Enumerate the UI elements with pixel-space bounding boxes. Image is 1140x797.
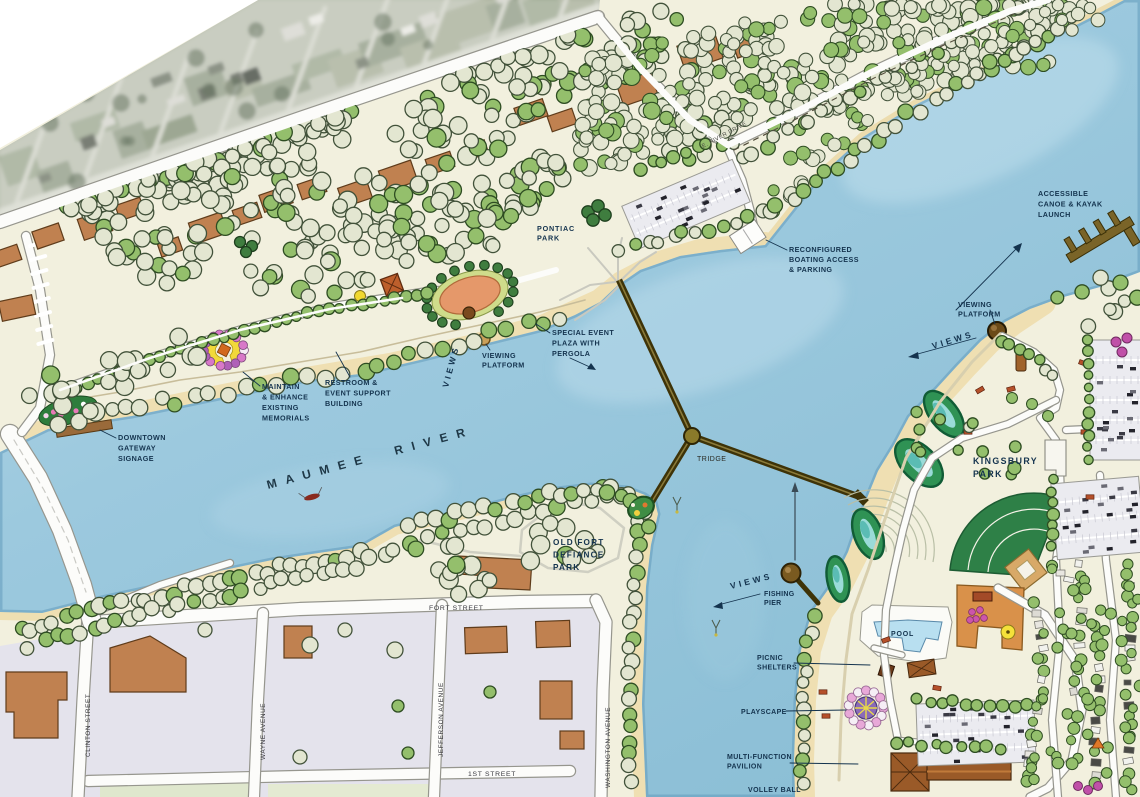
svg-text:TRIDGE: TRIDGE <box>697 456 726 463</box>
svg-text:JEFFERSON AVENUE: JEFFERSON AVENUE <box>438 682 445 757</box>
svg-text:FORT STREET: FORT STREET <box>429 605 484 612</box>
svg-text:CLINTON STREET: CLINTON STREET <box>85 694 92 757</box>
svg-text:VOLLEY BALL: VOLLEY BALL <box>748 787 801 794</box>
svg-text:1ST STREET: 1ST STREET <box>468 771 516 778</box>
svg-text:POOL: POOL <box>891 631 914 638</box>
svg-text:PLAYSCAPE: PLAYSCAPE <box>741 709 787 716</box>
svg-text:WAYNE AVENUE: WAYNE AVENUE <box>260 703 267 760</box>
svg-text:WASHINGTON AVENUE: WASHINGTON AVENUE <box>605 707 612 788</box>
